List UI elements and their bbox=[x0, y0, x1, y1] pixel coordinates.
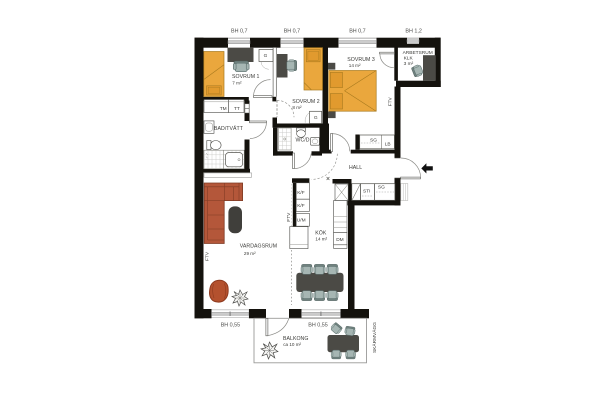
svg-text:BH 1,2: BH 1,2 bbox=[405, 29, 421, 35]
svg-text:FTV: FTV bbox=[286, 212, 292, 222]
svg-text:BH 0,55: BH 0,55 bbox=[221, 323, 240, 329]
svg-text:ARBETSRUM: ARBETSRUM bbox=[403, 50, 433, 56]
svg-text:SG: SG bbox=[378, 185, 385, 191]
svg-text:LB: LB bbox=[385, 142, 391, 148]
svg-text:ca 10 m²: ca 10 m² bbox=[283, 342, 301, 347]
svg-text:BAD/TVÄTT: BAD/TVÄTT bbox=[214, 125, 244, 132]
svg-text:FTV: FTV bbox=[387, 96, 393, 106]
svg-text:BH 0,7: BH 0,7 bbox=[349, 29, 365, 35]
svg-text:BH 0,7: BH 0,7 bbox=[284, 29, 300, 35]
svg-text:TM: TM bbox=[220, 106, 227, 112]
svg-text:G: G bbox=[314, 115, 318, 121]
svg-text:FTV: FTV bbox=[204, 251, 210, 261]
svg-text:KLK: KLK bbox=[404, 56, 414, 62]
svg-text:DM: DM bbox=[336, 237, 343, 243]
svg-text:WC/D: WC/D bbox=[296, 137, 310, 143]
svg-text:14 m²: 14 m² bbox=[349, 63, 361, 68]
svg-text:K/F: K/F bbox=[297, 190, 305, 196]
svg-text:29 m²: 29 m² bbox=[244, 251, 256, 256]
svg-text:14 m²: 14 m² bbox=[315, 236, 327, 241]
svg-text:8 m²: 8 m² bbox=[292, 105, 302, 110]
svg-text:BH 0,55: BH 0,55 bbox=[308, 323, 327, 329]
svg-text:TT: TT bbox=[234, 106, 240, 112]
svg-text:VARDAGSRUM: VARDAGSRUM bbox=[240, 244, 277, 250]
svg-text:3 m²: 3 m² bbox=[404, 61, 414, 67]
svg-text:7 m²: 7 m² bbox=[232, 81, 242, 86]
svg-text:G: G bbox=[264, 53, 268, 59]
svg-text:HALL: HALL bbox=[349, 165, 362, 171]
svg-text:SOVRUM 1: SOVRUM 1 bbox=[232, 74, 260, 80]
svg-text:U/M: U/M bbox=[297, 218, 306, 224]
svg-text:SG: SG bbox=[370, 138, 377, 144]
svg-text:K/F: K/F bbox=[297, 203, 305, 209]
svg-text:BH 0,7: BH 0,7 bbox=[231, 29, 247, 35]
svg-text:SKÄRMVÄGG: SKÄRMVÄGG bbox=[371, 322, 378, 353]
svg-text:STI: STI bbox=[363, 189, 370, 195]
